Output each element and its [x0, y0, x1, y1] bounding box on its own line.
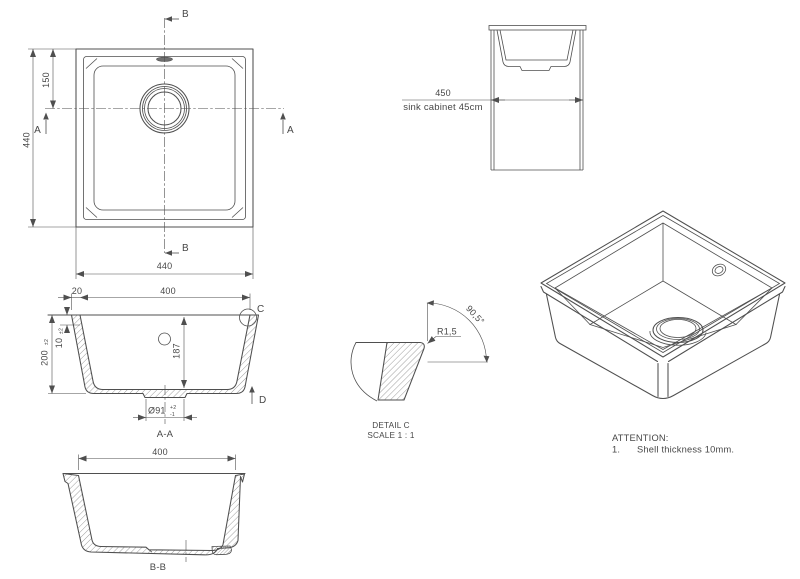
section-b-top-arrow — [165, 16, 172, 22]
dim-rim-lip-label: 20 — [72, 286, 82, 296]
dim-drain-offset-label: 150 — [41, 72, 51, 88]
detail-shell-section — [378, 343, 424, 401]
dim-drain-offset: 150 — [41, 49, 53, 109]
detail-boundary-arc — [351, 343, 377, 402]
section-a-right-arrow — [280, 113, 286, 120]
notes-item-text: Shell thickness 10mm. — [637, 445, 734, 455]
isometric-view — [541, 211, 785, 399]
section-a-left-arrow — [43, 113, 49, 120]
sink-bowl-outer — [497, 30, 576, 71]
dim-drain-dia-label: Ø91 — [148, 406, 166, 416]
section-marker-a-left: A — [34, 113, 49, 137]
dim-overall-height-label: 440 — [22, 132, 32, 148]
iso-bowl-edges — [555, 223, 772, 325]
dim-angle: 90,5° — [427, 300, 490, 362]
section-bb-view: 400 B-B — [63, 447, 245, 573]
section-aa-title: A-A — [157, 429, 174, 440]
cabinet-note-label: sink cabinet 45cm — [403, 102, 482, 113]
iso-body — [541, 287, 785, 399]
dim-radius: R1,5 — [428, 327, 462, 344]
dim-angle-label: 90,5° — [464, 303, 487, 326]
dim-drain-tol-minus-label: -1 — [170, 412, 175, 418]
section-a-right-label: A — [287, 125, 294, 136]
dim-inner-depth-label: 187 — [172, 343, 182, 359]
technical-drawing-sheet: 440 150 440 B B A — [0, 0, 800, 579]
section-marker-b-bottom: B — [165, 243, 189, 256]
detail-c-title: DETAIL C — [372, 421, 410, 430]
dim-inner-width-bb-label: 400 — [152, 447, 168, 457]
drain-boss-bb — [212, 546, 232, 555]
dim-inner-width-aa-label: 400 — [160, 286, 176, 296]
dim-radius-label: R1,5 — [437, 327, 457, 337]
notes-heading: ATTENTION: — [612, 433, 669, 443]
section-bb-title: B-B — [150, 562, 166, 573]
angle-arrow-right — [484, 356, 490, 363]
dim-inner-depth: 187 — [172, 317, 185, 388]
countertop — [489, 26, 586, 31]
cabinet-side-view: 450 sink cabinet 45cm — [402, 26, 586, 171]
notes-item-number: 1. — [612, 445, 620, 455]
notes: ATTENTION: 1. Shell thickness 10mm. — [612, 433, 734, 455]
direction-d-label: D — [259, 395, 266, 406]
overflow-hole-section — [159, 333, 171, 345]
section-b-bottom-arrow — [165, 250, 172, 256]
dim-drain-tol-plus-label: +2 — [170, 405, 176, 411]
dim-inner-width-bb: 400 — [79, 447, 236, 470]
iso-bowl-opening — [555, 223, 772, 350]
detail-c-scale: SCALE 1 : 1 — [367, 431, 415, 440]
section-a-left-label: A — [34, 125, 41, 136]
section-aa-view: 20 400 10 ±2 200 ±2 187 — [40, 286, 267, 440]
drawing-svg: 440 150 440 B B A — [0, 0, 800, 579]
section-marker-a-right: A — [280, 113, 294, 137]
dim-shell-tol-label: ±2 — [59, 328, 65, 334]
dim-cabinet-width-label: 450 — [435, 88, 451, 98]
detail-c-view: 90,5° R1,5 DETAIL C SCALE 1 : 1 — [351, 300, 489, 440]
dim-inner-width-aa: 400 — [80, 286, 250, 310]
plan-view: 440 150 440 B B A — [22, 9, 295, 279]
shell-section-bb — [63, 474, 245, 555]
dim-cabinet-width: 450 sink cabinet 45cm — [402, 88, 583, 113]
iso-overflow-hole — [710, 262, 728, 278]
dim-depth-label: 200 — [40, 350, 50, 366]
section-marker-b-top: B — [165, 9, 189, 22]
detail-c-marker-label: C — [257, 304, 264, 315]
dim-overall-width-label: 440 — [157, 261, 173, 271]
sink-bowl-inner — [500, 30, 573, 60]
iso-bowl-floor — [590, 281, 736, 348]
dim-shell-label: 10 — [54, 338, 64, 348]
section-b-bottom-label: B — [182, 243, 189, 254]
direction-marker-d: D — [249, 386, 266, 406]
dim-depth-tol-label: ±2 — [44, 339, 50, 345]
section-b-top-label: B — [182, 9, 189, 20]
dim-rim-lip: 20 — [58, 286, 82, 310]
direction-d-arrow — [249, 386, 255, 393]
